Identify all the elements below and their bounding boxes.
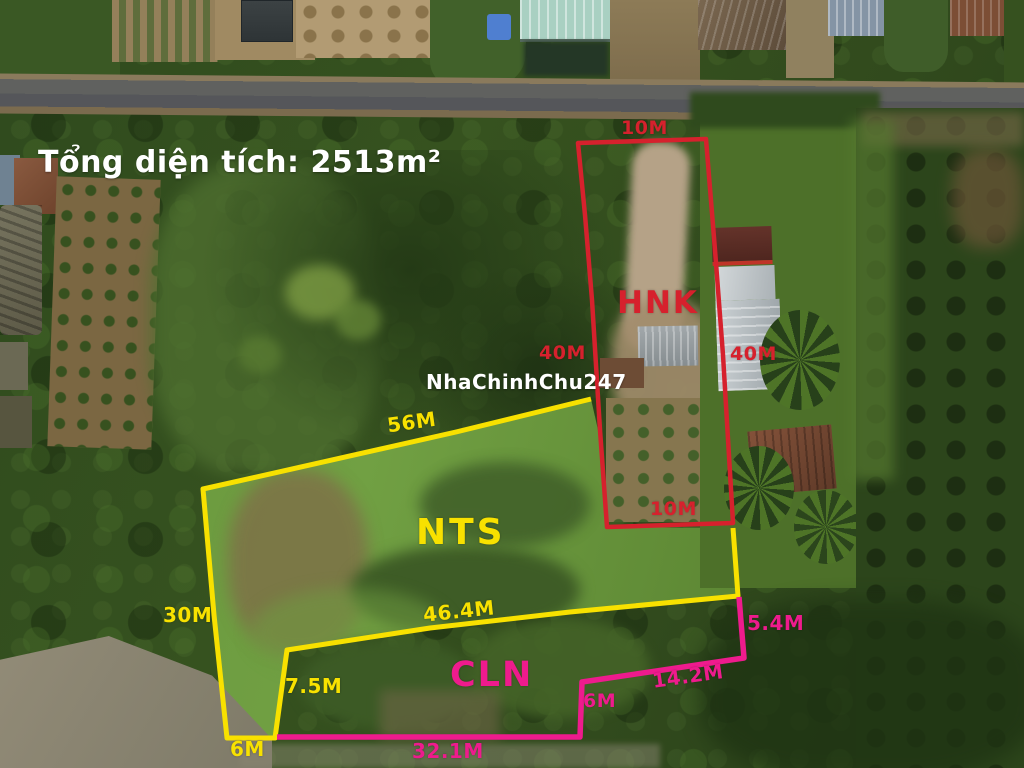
watermark: NhaChinhChu247 [426,372,627,392]
nts-left-dimension: 30M [163,605,212,625]
nts-jog-bottom-dimension: 6M [230,739,265,759]
nts-jog-vertical-dimension: 7.5M [285,676,342,696]
cln-right-dimension: 5.4M [747,613,804,633]
hnk-left-dimension: 40M [539,344,586,363]
hnk-boundary [578,139,733,527]
hnk-bottom-dimension: 10M [650,500,697,519]
hnk-right-dimension: 40M [730,345,777,364]
parcel-label-cln: CLN [450,658,533,693]
nts-top-dimension: 56M [386,409,438,436]
total-area-title: Tổng diện tích: 2513m² [38,148,441,178]
cln-jog-dimension: 6M [583,692,616,711]
hnk-top-dimension: 10M [621,119,668,138]
parcel-label-hnk: HNK [617,288,699,319]
cln-bottom-dimension: 32.1M [412,741,484,761]
parcel-label-nts: NTS [416,515,506,551]
aerial-land-listing-image: Tổng diện tích: 2513m² NhaChinhChu247 HN… [0,0,1024,768]
